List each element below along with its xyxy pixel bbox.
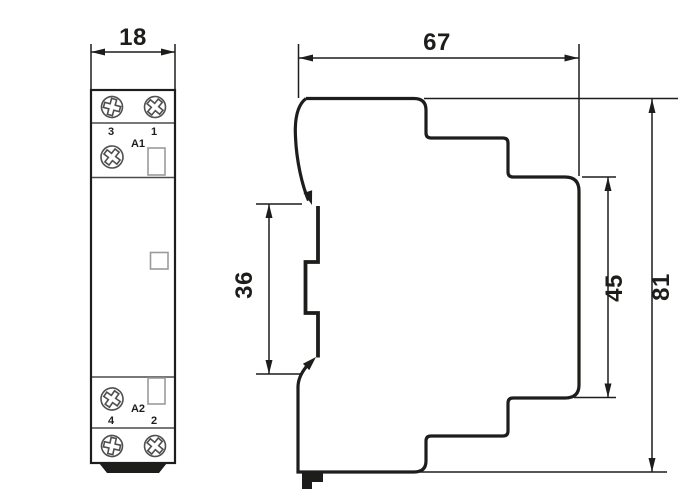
rail-span-dimension	[256, 204, 303, 374]
arrowhead-left-icon	[91, 49, 105, 56]
side-view: 67 36 45	[231, 29, 678, 489]
depth-dimension	[299, 44, 580, 176]
arrowhead-left-icon	[299, 55, 313, 62]
arrowhead-down-icon	[649, 458, 656, 472]
arrowhead-up-icon	[266, 204, 273, 218]
side-profile-outline	[298, 99, 579, 473]
dim-label-rail-span: 36	[231, 271, 258, 299]
clip-spring-curve-top	[295, 99, 308, 201]
arrowhead-down-icon	[605, 384, 612, 398]
technical-drawing-canvas: 18	[0, 0, 700, 500]
coil-label-a1: A1	[131, 138, 145, 150]
arrowhead-up-icon	[649, 99, 656, 113]
arrowhead-up-icon	[605, 177, 612, 191]
dim-label-height: 81	[648, 273, 675, 301]
arrowhead-right-icon	[161, 49, 175, 56]
terminal-label-3: 3	[108, 126, 114, 138]
height-extensions	[420, 99, 678, 473]
terminal-label-4: 4	[108, 415, 115, 427]
din-clip-foot	[99, 463, 167, 473]
terminal-label-2: 2	[151, 415, 157, 427]
terminal-label-1: 1	[151, 126, 157, 138]
rail-stop-foot	[302, 473, 323, 490]
coil-label-a2: A2	[131, 403, 145, 415]
rail-groove-edge	[306, 206, 319, 358]
arrowhead-right-icon	[565, 55, 579, 62]
dim-label-face-height: 45	[601, 274, 628, 302]
arrowhead-down-icon	[266, 360, 273, 374]
front-view: 18	[91, 24, 175, 473]
dimension-drawing: 18	[0, 0, 700, 500]
dim-label-depth: 67	[423, 29, 451, 56]
dim-label-width: 18	[119, 24, 147, 51]
